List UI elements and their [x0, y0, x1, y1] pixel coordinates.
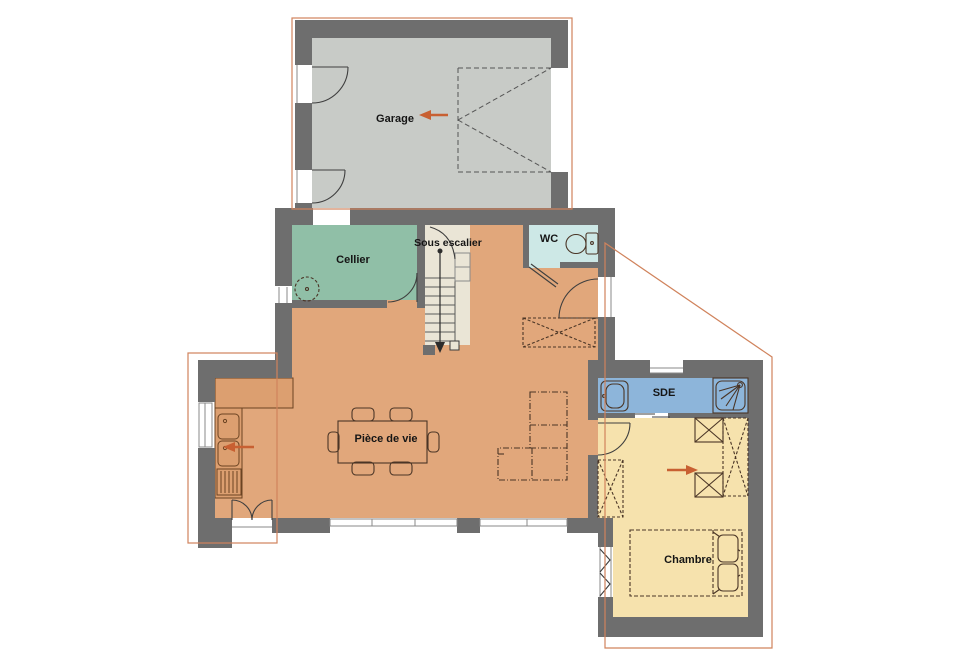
window-south-1 [330, 519, 457, 526]
window-sde [650, 368, 683, 373]
window-south-2 [480, 519, 567, 526]
door-sde-sliding [635, 414, 670, 417]
floor-plan: Garage Cellier Sous escalier WC Pièce de… [0, 0, 960, 664]
chambre-label: Chambre [664, 554, 712, 566]
wc-floor [523, 225, 598, 268]
piece-de-vie-label: Pièce de vie [355, 433, 418, 445]
sde-label: SDE [653, 387, 676, 399]
window-cellier [279, 287, 287, 303]
dishwasher-icon [217, 469, 241, 495]
garage-floor [312, 38, 551, 208]
window-kitchen [199, 403, 212, 447]
wc-label: WC [540, 233, 558, 245]
floor-plan-page: Garage Cellier Sous escalier WC Pièce de… [0, 0, 960, 664]
cellier-label: Cellier [336, 254, 370, 266]
sous-escalier-label: Sous escalier [414, 237, 482, 249]
garage-label: Garage [376, 113, 414, 125]
